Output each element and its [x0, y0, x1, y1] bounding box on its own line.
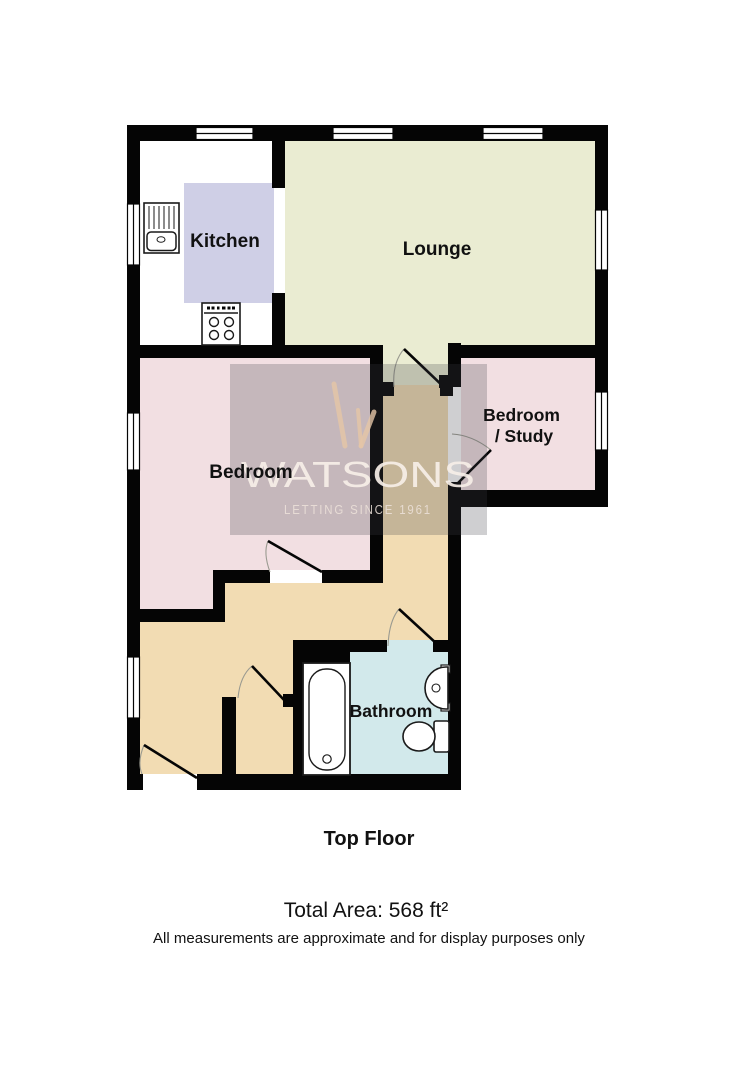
- wall-bedroom-bottom-right: [322, 570, 383, 583]
- wall-closet-stub: [222, 697, 236, 774]
- window-icon: [128, 657, 140, 718]
- toilet-icon: [403, 721, 449, 752]
- total-area-text: Total Area: 568 ft²: [284, 899, 449, 922]
- wall-bathroom-top: [293, 640, 387, 652]
- captions: Top Floor Total Area: 568 ft² All measur…: [153, 828, 585, 947]
- window-icon: [596, 392, 608, 450]
- kitchen-sink-icon: [144, 203, 179, 253]
- floorplan-page: WATSONS LETTING SINCE 1961 Kitchen Loung…: [0, 0, 735, 1080]
- disclaimer-text: All measurements are approximate and for…: [153, 930, 585, 947]
- window-icon: [333, 128, 393, 140]
- wall-lounge-bottom: [448, 345, 595, 358]
- floor-title: Top Floor: [324, 828, 415, 850]
- entrance-opening: [143, 774, 197, 790]
- wall-bedroom-ext-bottom: [127, 609, 225, 622]
- label-bedroom-study: Bedroom / Study: [483, 405, 565, 446]
- window-icon: [196, 128, 253, 140]
- watermark: WATSONS LETTING SINCE 1961: [230, 364, 487, 535]
- window-icon: [128, 413, 140, 470]
- stove-icon: [202, 303, 240, 345]
- floorplan-svg: WATSONS LETTING SINCE 1961 Kitchen Loung…: [0, 0, 735, 1080]
- label-lounge: Lounge: [403, 239, 472, 260]
- bathtub-header: [303, 652, 350, 663]
- window-icon: [596, 210, 608, 270]
- wall-bedroom-top: [127, 345, 383, 358]
- label-kitchen: Kitchen: [190, 231, 260, 252]
- label-bathroom: Bathroom: [350, 701, 433, 721]
- watermark-tagline: LETTING SINCE 1961: [284, 503, 432, 517]
- bathtub-icon: [303, 663, 350, 775]
- window-icon: [128, 204, 140, 265]
- window-icon: [483, 128, 543, 140]
- wall-kitchen-divider-top: [272, 141, 285, 188]
- label-bedroom: Bedroom: [209, 462, 292, 483]
